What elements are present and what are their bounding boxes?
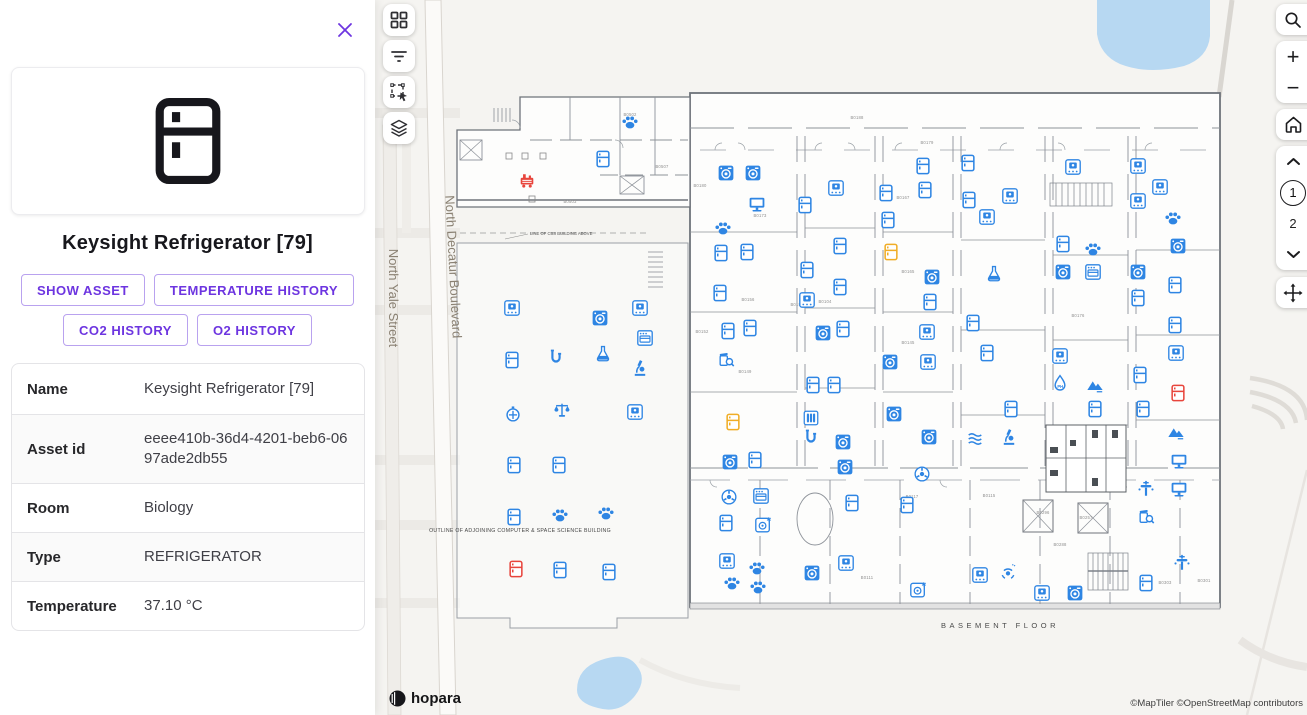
asset-marker-fridge[interactable] — [510, 561, 522, 576]
asset-marker-atom[interactable] — [915, 467, 929, 481]
details-table: Name Keysight Refrigerator [79] Asset id… — [11, 363, 365, 631]
room-label: B0301 — [1197, 578, 1211, 583]
table-row: Type REFRIGERATOR — [12, 533, 364, 582]
asset-marker-washer[interactable] — [1171, 239, 1186, 254]
show-asset-button[interactable]: SHOW ASSET — [21, 274, 145, 306]
asset-marker-fridge[interactable] — [720, 515, 732, 530]
asset-marker-washer2[interactable] — [911, 582, 926, 597]
asset-marker-fridge[interactable] — [962, 155, 974, 170]
asset-marker-incubator[interactable] — [505, 301, 519, 315]
filter-button[interactable] — [383, 40, 415, 72]
asset-marker-incubator[interactable] — [921, 355, 935, 369]
floor-current-badge: 1 — [1280, 180, 1306, 206]
asset-marker-fridge[interactable] — [715, 245, 727, 260]
row-label: Temperature — [12, 598, 144, 615]
room-label: B0503 — [563, 199, 577, 204]
close-icon — [336, 21, 354, 39]
move-icon — [1283, 283, 1303, 303]
asset-marker-washer[interactable] — [836, 435, 851, 450]
asset-marker-fridge[interactable] — [1169, 277, 1181, 292]
chevron-up-icon — [1286, 157, 1301, 166]
asset-marker-fridge[interactable] — [1134, 367, 1146, 382]
asset-marker-fridge[interactable] — [846, 495, 858, 510]
room-label: B0176 — [1071, 313, 1085, 318]
room-label: B0145 — [901, 340, 915, 345]
asset-marker-fridge[interactable] — [834, 238, 846, 253]
refrigerator-icon — [150, 97, 226, 185]
page-title: Keysight Refrigerator [79] — [0, 232, 375, 255]
asset-marker-washer[interactable] — [1068, 586, 1083, 601]
room-label: B0303 — [1158, 580, 1172, 585]
room-label: B0149 — [738, 369, 752, 374]
asset-marker-fridge[interactable] — [801, 262, 813, 277]
asset-marker-incubator[interactable] — [920, 325, 934, 339]
floor-up-button[interactable] — [1276, 146, 1307, 177]
row-label: Name — [12, 381, 144, 398]
home-button[interactable] — [1276, 109, 1307, 140]
hopara-logo-text: hopara — [411, 690, 461, 707]
asset-marker-incubator[interactable] — [1053, 349, 1067, 363]
asset-marker-fridge[interactable] — [506, 352, 518, 367]
asset-detail-panel: Keysight Refrigerator [79] SHOW ASSET TE… — [0, 0, 375, 715]
asset-marker-oven[interactable] — [754, 489, 768, 503]
asset-marker-fridge[interactable] — [722, 323, 734, 338]
asset-marker-washer2[interactable] — [756, 517, 771, 532]
asset-marker-tubes[interactable] — [804, 411, 818, 425]
asset-marker-incubator[interactable] — [1131, 159, 1145, 173]
floor-plan — [457, 93, 1220, 628]
home-icon — [1284, 115, 1303, 134]
chevron-down-icon — [1286, 250, 1301, 259]
asset-marker-washer[interactable] — [719, 166, 734, 181]
row-label: Room — [12, 500, 144, 517]
hopara-logo-icon — [389, 690, 406, 707]
asset-marker-fridge[interactable] — [807, 377, 819, 392]
map-attribution[interactable]: ©MapTiler ©OpenStreetMap contributors — [1130, 698, 1303, 709]
pan-control[interactable] — [1276, 277, 1307, 308]
plan-note-line-of: LINE OF CSS BUILDING ABOVE — [530, 231, 593, 236]
asset-marker-incubator[interactable] — [633, 301, 647, 315]
asset-marker-incubator[interactable] — [839, 556, 853, 570]
row-value: eeee410b-36d4-4201-beb6-0697ade2db55 — [144, 429, 364, 470]
asset-marker-incubator[interactable] — [1066, 160, 1080, 174]
box-select-button[interactable] — [383, 76, 415, 108]
asset-marker-incubator[interactable] — [720, 554, 734, 568]
asset-marker-incubator[interactable] — [1169, 346, 1183, 360]
asset-marker-washer[interactable] — [816, 326, 831, 341]
plan-note-basement: BASEMENT FLOOR — [941, 621, 1059, 630]
asset-marker-fridge[interactable] — [885, 244, 897, 259]
table-row: Name Keysight Refrigerator [79] — [12, 364, 364, 415]
room-label: B0507 — [655, 164, 669, 169]
layers-icon — [389, 118, 409, 138]
asset-marker-fridge[interactable] — [727, 414, 739, 429]
floor-down-button[interactable] — [1276, 239, 1307, 270]
room-label: B0179 — [920, 140, 934, 145]
asset-marker-fridge[interactable] — [828, 377, 840, 392]
box-select-icon — [390, 83, 409, 102]
asset-marker-fridge[interactable] — [744, 320, 756, 335]
asset-marker-incubator[interactable] — [829, 181, 843, 195]
asset-marker-fridge[interactable] — [882, 212, 894, 227]
table-row: Asset id eeee410b-36d4-4201-beb6-0697ade… — [12, 415, 364, 484]
asset-marker-fridge[interactable] — [741, 244, 753, 259]
floor-2-button[interactable]: 2 — [1276, 208, 1307, 239]
row-label: Asset id — [12, 441, 144, 458]
asset-marker-fridge[interactable] — [880, 185, 892, 200]
home-control[interactable] — [1276, 109, 1307, 140]
asset-marker-oven[interactable] — [638, 331, 652, 345]
room-label: B0104 — [818, 299, 832, 304]
asset-marker-fridge[interactable] — [981, 345, 993, 360]
asset-image-card — [11, 67, 365, 215]
asset-marker-fridge[interactable] — [1089, 401, 1101, 416]
room-label: B0288 — [1053, 542, 1067, 547]
asset-marker-fridge[interactable] — [924, 294, 936, 309]
filter-icon — [390, 47, 408, 65]
asset-marker-washer[interactable] — [723, 455, 738, 470]
layers-button[interactable] — [383, 112, 415, 144]
row-value: REFRIGERATOR — [144, 547, 274, 567]
table-row: Temperature 37.10 °C — [12, 582, 364, 630]
asset-marker-fridge[interactable] — [837, 321, 849, 336]
zoom-out-button[interactable]: − — [1276, 72, 1307, 103]
asset-marker-fridge[interactable] — [749, 452, 761, 467]
row-value: Keysight Refrigerator [79] — [144, 379, 326, 399]
asset-marker-fridge[interactable] — [508, 457, 520, 472]
asset-marker-washer[interactable] — [805, 566, 820, 581]
floor-1-button[interactable]: 1 — [1276, 177, 1307, 208]
temperature-history-button[interactable]: TEMPERATURE HISTORY — [154, 274, 354, 306]
room-label: B0111 — [861, 575, 874, 580]
asset-marker-incubator[interactable] — [973, 568, 987, 582]
asset-marker-oven[interactable] — [1086, 265, 1100, 279]
asset-marker-fridge[interactable] — [1169, 317, 1181, 332]
asset-marker-fridge[interactable] — [597, 151, 609, 166]
search-button[interactable] — [1276, 4, 1307, 35]
asset-marker-fridge[interactable] — [554, 562, 566, 577]
asset-marker-washer[interactable] — [593, 311, 608, 326]
asset-marker-fridge[interactable] — [967, 315, 979, 330]
room-label: B0156 — [741, 297, 755, 302]
asset-marker-incubator[interactable] — [980, 210, 994, 224]
zoom-control: + − — [1276, 41, 1307, 103]
asset-marker-fridge[interactable] — [508, 509, 520, 524]
room-label: B0502 — [623, 112, 637, 117]
plan-note-outline: OUTLINE OF ADJOINING COMPUTER & SPACE SC… — [429, 528, 611, 534]
dashboard-grid-button[interactable] — [383, 4, 415, 36]
asset-marker-washer[interactable] — [887, 407, 902, 422]
pan-button[interactable] — [1276, 277, 1307, 308]
room-label: B0173 — [753, 213, 767, 218]
asset-marker-incubator[interactable] — [1003, 189, 1017, 203]
grid-icon — [390, 11, 408, 29]
asset-marker-fridge[interactable] — [1132, 290, 1144, 305]
floor-selector: 1 2 — [1276, 146, 1307, 270]
asset-marker-washer[interactable] — [838, 460, 853, 475]
asset-marker-washer[interactable] — [925, 270, 940, 285]
room-label: B0257 — [1079, 515, 1093, 520]
asset-marker-fridge[interactable] — [834, 279, 846, 294]
asset-marker-fridge[interactable] — [799, 197, 811, 212]
room-label: B0188 — [850, 115, 864, 120]
zoom-in-button[interactable]: + — [1276, 41, 1307, 72]
asset-marker-fridge[interactable] — [1137, 401, 1149, 416]
asset-marker-atom[interactable] — [722, 490, 736, 504]
asset-marker-fridge[interactable] — [1172, 385, 1184, 400]
asset-marker-washer[interactable] — [746, 166, 761, 181]
o2-history-button[interactable]: O2 HISTORY — [197, 314, 312, 346]
asset-marker-fridge[interactable] — [963, 192, 975, 207]
asset-marker-washer[interactable] — [1131, 265, 1146, 280]
close-button[interactable] — [334, 20, 356, 42]
row-label: Type — [12, 549, 144, 566]
room-label: B0167 — [896, 195, 910, 200]
asset-marker-fridge[interactable] — [901, 497, 913, 512]
asset-marker-fridge[interactable] — [1140, 575, 1152, 590]
asset-marker-fridge[interactable] — [919, 182, 931, 197]
room-label: B0165 — [901, 269, 915, 274]
asset-marker-washer[interactable] — [1056, 265, 1071, 280]
asset-marker-incubator[interactable] — [1035, 586, 1049, 600]
row-value: Biology — [144, 498, 205, 518]
table-row: Room Biology — [12, 484, 364, 533]
asset-marker-incubator[interactable] — [800, 293, 814, 307]
hopara-logo[interactable]: hopara — [389, 690, 461, 707]
co2-history-button[interactable]: CO2 HISTORY — [63, 314, 188, 346]
asset-marker-incubator[interactable] — [1153, 180, 1167, 194]
row-value: 37.10 °C — [144, 596, 215, 616]
asset-marker-washer[interactable] — [922, 430, 937, 445]
asset-marker-fridge[interactable] — [917, 158, 929, 173]
asset-marker-fridge[interactable] — [1005, 401, 1017, 416]
room-label: B0115 — [983, 493, 996, 498]
search-control[interactable] — [1276, 4, 1307, 35]
room-label: B0296 — [1036, 510, 1050, 515]
street-label-yale: North Yale Street — [386, 249, 401, 348]
asset-marker-fridge[interactable] — [553, 457, 565, 472]
asset-marker-incubator[interactable] — [628, 405, 642, 419]
asset-marker-washer[interactable] — [883, 355, 898, 370]
annotation-leader — [505, 234, 528, 239]
search-icon — [1284, 11, 1302, 29]
asset-marker-incubator[interactable] — [1131, 194, 1145, 208]
asset-marker-fridge[interactable] — [603, 564, 615, 579]
asset-marker-fridge[interactable] — [1057, 236, 1069, 251]
room-label: B0180 — [693, 183, 707, 188]
asset-marker-fridge[interactable] — [714, 285, 726, 300]
room-label: B0152 — [695, 329, 709, 334]
